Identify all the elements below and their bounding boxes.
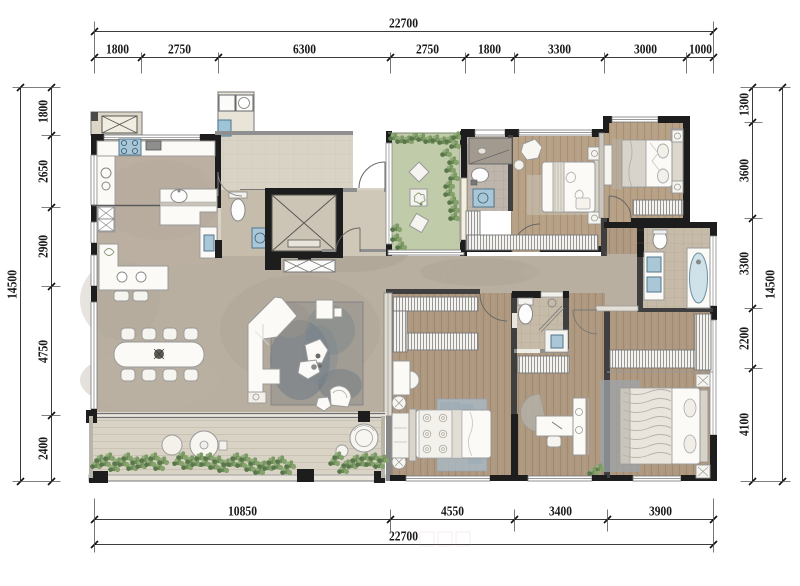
svg-text:14500: 14500 <box>764 270 779 299</box>
svg-text:1800: 1800 <box>478 43 501 58</box>
svg-text:10850: 10850 <box>228 505 257 520</box>
svg-text:4550: 4550 <box>441 505 464 520</box>
svg-text:3300: 3300 <box>738 252 753 275</box>
svg-text:4750: 4750 <box>37 340 52 363</box>
svg-text:1300: 1300 <box>738 93 753 116</box>
svg-text:3900: 3900 <box>649 505 672 520</box>
svg-text:2900: 2900 <box>37 235 52 258</box>
svg-text:1800: 1800 <box>106 43 129 58</box>
svg-text:1000: 1000 <box>689 43 712 58</box>
svg-text:3400: 3400 <box>549 505 572 520</box>
svg-text:3600: 3600 <box>738 159 753 182</box>
svg-text:3300: 3300 <box>548 43 571 58</box>
svg-text:2400: 2400 <box>37 437 52 460</box>
svg-text:4100: 4100 <box>738 413 753 436</box>
svg-text:2750: 2750 <box>416 43 439 58</box>
svg-text:2650: 2650 <box>37 160 52 183</box>
svg-text:2750: 2750 <box>168 43 191 58</box>
svg-text:2200: 2200 <box>738 327 753 350</box>
svg-text:6300: 6300 <box>293 43 316 58</box>
svg-text:14500: 14500 <box>6 270 21 299</box>
svg-text:3000: 3000 <box>634 43 657 58</box>
svg-text:22700: 22700 <box>389 17 418 32</box>
svg-text:22700: 22700 <box>389 530 418 545</box>
svg-text:1800: 1800 <box>37 100 52 123</box>
